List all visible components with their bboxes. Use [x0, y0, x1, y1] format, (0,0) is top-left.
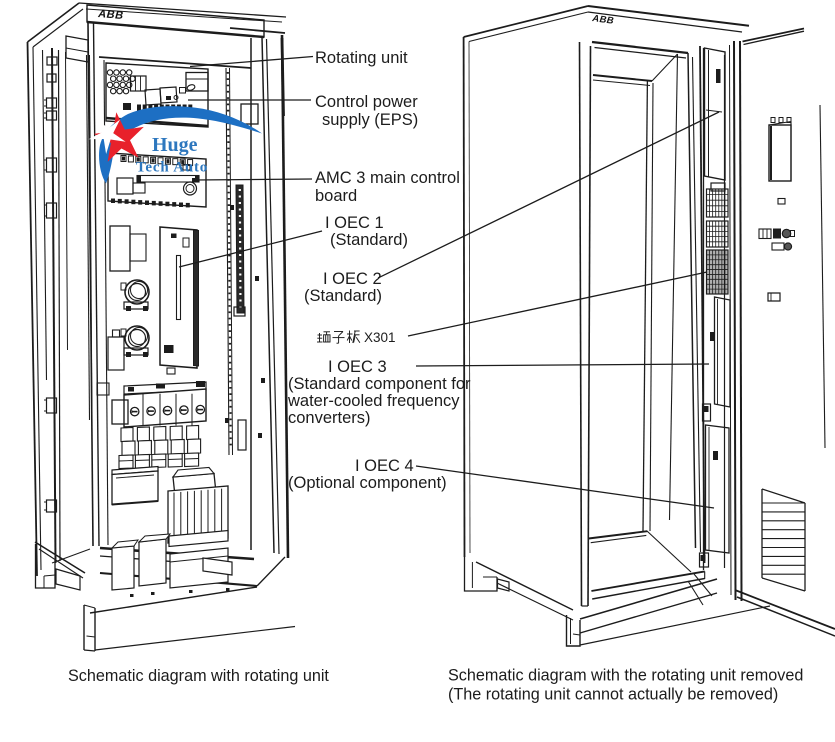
- svg-text:X301: X301: [364, 330, 396, 345]
- svg-text:I OEC 3: I OEC 3: [328, 358, 387, 376]
- svg-text:supply (EPS): supply (EPS): [322, 111, 418, 129]
- svg-text:Schematic diagram with the rot: Schematic diagram with the rotating unit…: [448, 667, 803, 685]
- svg-text:board: board: [315, 187, 357, 205]
- svg-text:ABB: ABB: [97, 8, 124, 22]
- svg-text:Huge: Huge: [152, 134, 198, 156]
- svg-text:water-cooled frequency: water-cooled frequency: [287, 392, 460, 410]
- svg-text:(Standard): (Standard): [304, 287, 382, 305]
- svg-text:(Standard component for: (Standard component for: [288, 375, 471, 393]
- svg-text:AMC 3 main control: AMC 3 main control: [315, 169, 460, 187]
- svg-text:(Optional component): (Optional component): [288, 474, 447, 492]
- svg-text:I OEC 1: I OEC 1: [325, 214, 384, 232]
- svg-text:I OEC 4: I OEC 4: [355, 457, 414, 475]
- svg-text:Schematic diagram with rotatin: Schematic diagram with rotating unit: [68, 667, 329, 685]
- svg-text:Control power: Control power: [315, 93, 418, 111]
- svg-text:(The rotating unit cannot actu: (The rotating unit cannot actually be re…: [448, 686, 778, 704]
- svg-text:(Standard): (Standard): [330, 231, 408, 249]
- svg-text:Rotating unit: Rotating unit: [315, 49, 408, 67]
- svg-text:I OEC 2: I OEC 2: [323, 270, 382, 288]
- svg-text:converters): converters): [288, 409, 371, 427]
- svg-text:Tech Auto: Tech Auto: [136, 160, 208, 176]
